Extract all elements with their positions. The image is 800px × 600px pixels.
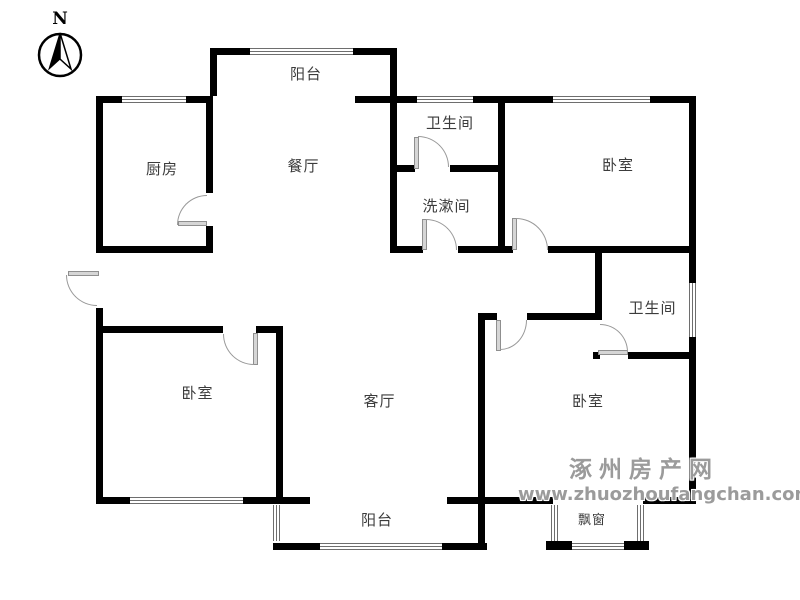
wall-bath-divider-left [391,165,415,172]
wall-top-mid-right [473,96,553,103]
wall-living-right [478,313,485,550]
label-bedroom-bottom-right: 卧室 [548,394,628,409]
label-bay-window: 飘窗 [562,514,622,527]
window-bay-left [551,505,558,541]
label-washroom: 洗漱间 [404,199,489,214]
wall-kitchen-bottom [96,246,213,253]
wall-bedroom-br-top-right [527,313,602,320]
wall-bedroom-left-bottom-left [96,497,130,504]
door-arc-entry [66,275,97,306]
door-arc-kitchen [177,195,207,225]
wall-bedroom-left-bottom-right [243,497,310,504]
label-bathroom-top: 卫生间 [410,116,490,131]
window-bay-right [637,505,644,541]
wall-balcony-bottom-right [442,543,487,550]
wall-washroom-bottom-left [391,246,423,253]
wall-bedroom-left-right [276,326,283,503]
floorplan-canvas: N [0,0,800,600]
label-bedroom-left: 卧室 [155,386,240,401]
window-bedroom-top-right [553,96,650,103]
window-bathroom-top [417,96,473,103]
window-balcony-bottom-left [273,505,280,541]
watermark-site-url: www.zhuozhoufangchan.com [518,485,770,505]
window-kitchen-top [122,96,186,103]
door-arc-bedroom-top-right [516,218,548,250]
wall-washroom-right [498,96,505,253]
compass-icon [37,29,83,79]
wall-bedroom-left-top-left [96,326,223,333]
wall-spine-balcony-washroom [390,48,397,253]
label-dining: 餐厅 [266,159,341,174]
window-bedroom-left [130,497,243,504]
wall-left-upper [96,96,103,253]
door-arc-bathroom-right [600,324,628,352]
window-balcony-top [250,48,353,55]
door-arc-bedroom-left [223,334,254,365]
label-balcony-top: 阳台 [271,67,341,82]
wall-bedrooms-top [548,246,689,253]
wall-right-upper [689,96,696,283]
wall-washroom-bottom-right [458,246,513,253]
compass: N [36,10,84,83]
door-arc-washroom [426,219,457,250]
wall-bath-divider-right [450,165,505,172]
label-bathroom-right: 卫生间 [610,301,695,316]
wall-balcony-bottom-left [273,543,320,550]
wall-top-mid-left [355,96,417,103]
watermark-site-name: 涿州房产网 [518,458,770,483]
window-bay-bottom [572,543,624,550]
wall-bathroom-right-bottom [628,352,689,359]
wall-bathroom-right-left [595,253,602,318]
label-bedroom-top-right: 卧室 [578,158,658,173]
door-arc-bedroom-br [500,320,527,350]
wall-left-lower [96,308,103,504]
label-kitchen: 厨房 [117,162,207,177]
door-arc-bathroom-top [418,136,449,167]
wall-bay-corner-right [624,541,649,550]
compass-north-label: N [36,10,84,29]
wall-bay-corner-left [546,541,572,550]
wall-kitchen-right-upper [206,96,213,193]
label-balcony-bottom: 阳台 [342,513,412,528]
wall-balcony-top-leftside [210,48,217,96]
window-balcony-bottom [320,543,442,550]
watermark: 涿州房产网 www.zhuozhoufangchan.com [518,458,770,505]
label-living-room: 客厅 [342,394,417,409]
